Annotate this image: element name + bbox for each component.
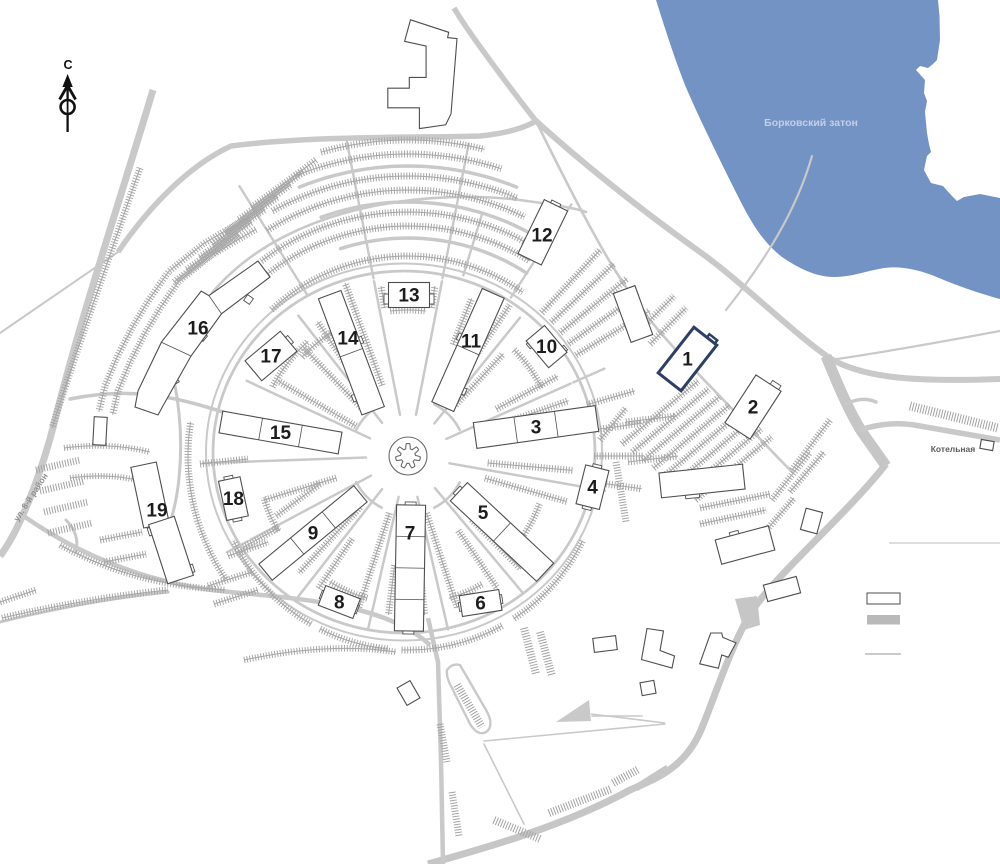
svg-text:9: 9 (308, 524, 319, 545)
svg-text:11: 11 (461, 332, 482, 353)
svg-text:13: 13 (398, 286, 419, 307)
svg-text:3: 3 (531, 418, 542, 439)
svg-text:2: 2 (748, 398, 759, 419)
svg-text:19: 19 (146, 501, 167, 522)
svg-text:16: 16 (187, 319, 208, 340)
svg-text:8: 8 (334, 593, 345, 614)
svg-text:4: 4 (587, 478, 598, 499)
svg-text:10: 10 (536, 337, 557, 358)
svg-text:С: С (63, 58, 72, 72)
svg-text:7: 7 (405, 524, 416, 545)
svg-text:Котельная: Котельная (931, 444, 976, 454)
svg-text:ул. 8-й район: ул. 8-й район (11, 471, 50, 523)
svg-text:12: 12 (531, 226, 552, 247)
svg-text:15: 15 (270, 423, 292, 444)
svg-text:1: 1 (682, 350, 693, 371)
svg-text:14: 14 (337, 329, 359, 350)
svg-text:6: 6 (475, 594, 486, 615)
svg-text:18: 18 (223, 489, 244, 510)
svg-text:5: 5 (478, 503, 489, 524)
svg-text:Борковский затон: Борковский затон (764, 117, 858, 129)
svg-text:17: 17 (260, 347, 281, 368)
